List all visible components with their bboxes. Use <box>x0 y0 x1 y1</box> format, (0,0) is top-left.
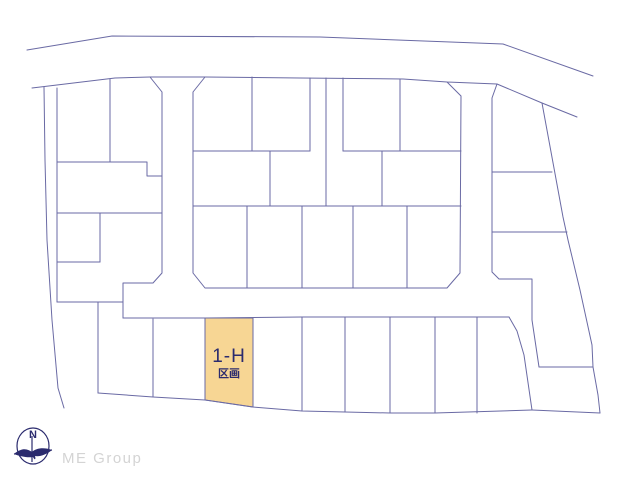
boundary-line <box>123 77 162 318</box>
compass-north-letter: N <box>29 429 37 441</box>
boundary-line <box>193 77 461 288</box>
boundary-line <box>27 36 593 76</box>
site-plan-page: 1-H 区画 N ME Group <box>0 0 640 480</box>
highlighted-lot-label: 1-H <box>212 346 246 367</box>
boundary-line <box>44 87 64 408</box>
lot-boundary-lines <box>27 36 600 413</box>
site-plan-map: 1-H 区画 N <box>0 0 640 480</box>
boundary-line <box>532 410 600 413</box>
boundary-line <box>492 84 593 367</box>
boundary-line <box>123 317 509 318</box>
highlighted-lot-sublabel: 区画 <box>218 367 240 380</box>
compass-bird-icon <box>14 448 52 459</box>
boundary-line <box>32 77 577 117</box>
compass-north-icon: N <box>14 428 52 464</box>
brand-text: ME Group <box>62 450 142 467</box>
boundary-line <box>57 162 162 176</box>
boundary-line <box>509 317 532 410</box>
boundary-line <box>98 393 532 413</box>
